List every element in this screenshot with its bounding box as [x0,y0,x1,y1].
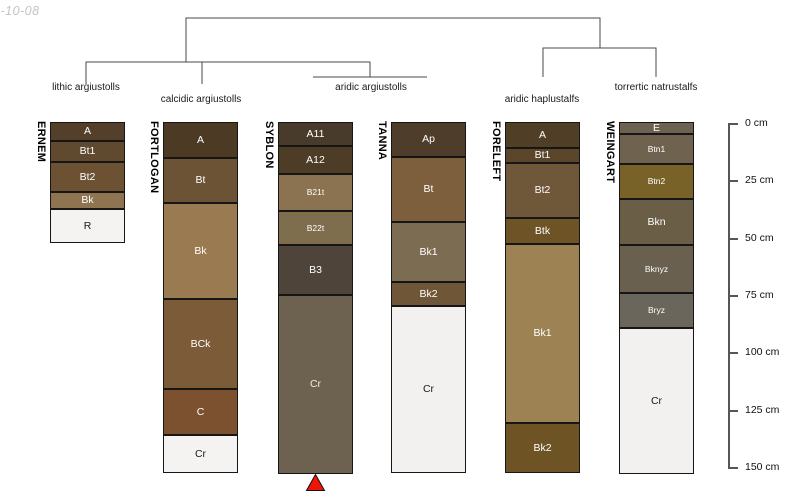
horizon-ernem-a: A [50,122,125,141]
horizon-weingart-btn2: Btn2 [619,164,694,199]
depth-tick [728,123,738,125]
profile-name-fortlogan: FORTLOGAN [148,121,160,193]
tree-label-lithic-argiustolls: lithic argiustolls [52,82,120,93]
horizon-tanna-bk2: Bk2 [391,282,466,306]
horizon-weingart-cr: Cr [619,328,694,474]
date-watermark: 5-10-08 [0,4,40,18]
horizon-weingart-bryz: Bryz [619,293,694,328]
horizon-tanna-bt: Bt [391,157,466,222]
profile-name-ernem: ERNEM [35,121,47,162]
horizon-syblon-b3: B3 [278,245,353,295]
marker-triangle-icon [307,475,325,491]
horizon-foreleft-bt2: Bt2 [505,163,580,218]
depth-tick [728,352,738,354]
depth-tick-label: 75 cm [745,289,774,301]
tree-label-calcidic-argiustolls: calcidic argiustolls [161,94,242,105]
tree-right-cluster-edge [543,48,656,77]
horizon-fortlogan-bk: Bk [163,203,238,299]
horizon-foreleft-btk: Btk [505,218,580,244]
horizon-foreleft-bt1: Bt1 [505,148,580,163]
horizon-tanna-bk1: Bk1 [391,222,466,282]
horizon-fortlogan-bt: Bt [163,158,238,203]
depth-tick [728,410,738,412]
depth-tick-label: 50 cm [745,232,774,244]
horizon-tanna-cr: Cr [391,306,466,473]
depth-tick [728,467,738,469]
tree-label-torrertic-natrustalfs: torrertic natrustalfs [615,82,698,93]
horizon-foreleft-bk1: Bk1 [505,244,580,423]
horizon-syblon-cr: Cr [278,295,353,474]
horizon-ernem-r: R [50,209,125,243]
soil-classification-figure: 5-10-08 lithic argiustolls calcidic argi… [0,0,800,500]
horizon-weingart-e: E [619,122,694,134]
profile-name-weingart: WEINGART [604,121,616,183]
horizon-ernem-bk: Bk [50,192,125,209]
depth-tick-label: 100 cm [745,346,779,358]
profile-name-tanna: TANNA [376,121,388,160]
horizon-syblon-b22t: B22t [278,211,353,245]
horizon-foreleft-a: A [505,122,580,148]
depth-tick-label: 25 cm [745,174,774,186]
horizon-foreleft-bk2: Bk2 [505,423,580,473]
horizon-tanna-ap: Ap [391,122,466,157]
depth-tick-label: 150 cm [745,461,779,473]
tree-label-aridic-argiustolls: aridic argiustolls [335,82,407,93]
depth-tick [728,295,738,297]
depth-tick-label: 125 cm [745,404,779,416]
horizon-weingart-bkn: Bkn [619,199,694,245]
horizon-syblon-b21t: B21t [278,174,353,211]
horizon-syblon-a11: A11 [278,122,353,146]
horizon-fortlogan-cr: Cr [163,435,238,473]
horizon-ernem-bt2: Bt2 [50,162,125,192]
horizon-weingart-bknyz: Bknyz [619,245,694,293]
horizon-fortlogan-a: A [163,122,238,158]
horizon-ernem-bt1: Bt1 [50,141,125,162]
tree-root-edge [186,18,600,62]
horizon-syblon-a12: A12 [278,146,353,174]
horizon-fortlogan-bck: BCk [163,299,238,389]
profile-name-syblon: SYBLON [263,121,275,169]
horizon-weingart-btn1: Btn1 [619,134,694,164]
depth-tick [728,180,738,182]
profile-name-foreleft: FORELEFT [490,121,502,181]
tree-label-aridic-haplustalfs: aridic haplustalfs [505,94,579,105]
depth-tick [728,238,738,240]
depth-tick-label: 0 cm [745,117,768,129]
tree-left-cluster-edge [86,62,427,84]
horizon-fortlogan-c: C [163,389,238,435]
